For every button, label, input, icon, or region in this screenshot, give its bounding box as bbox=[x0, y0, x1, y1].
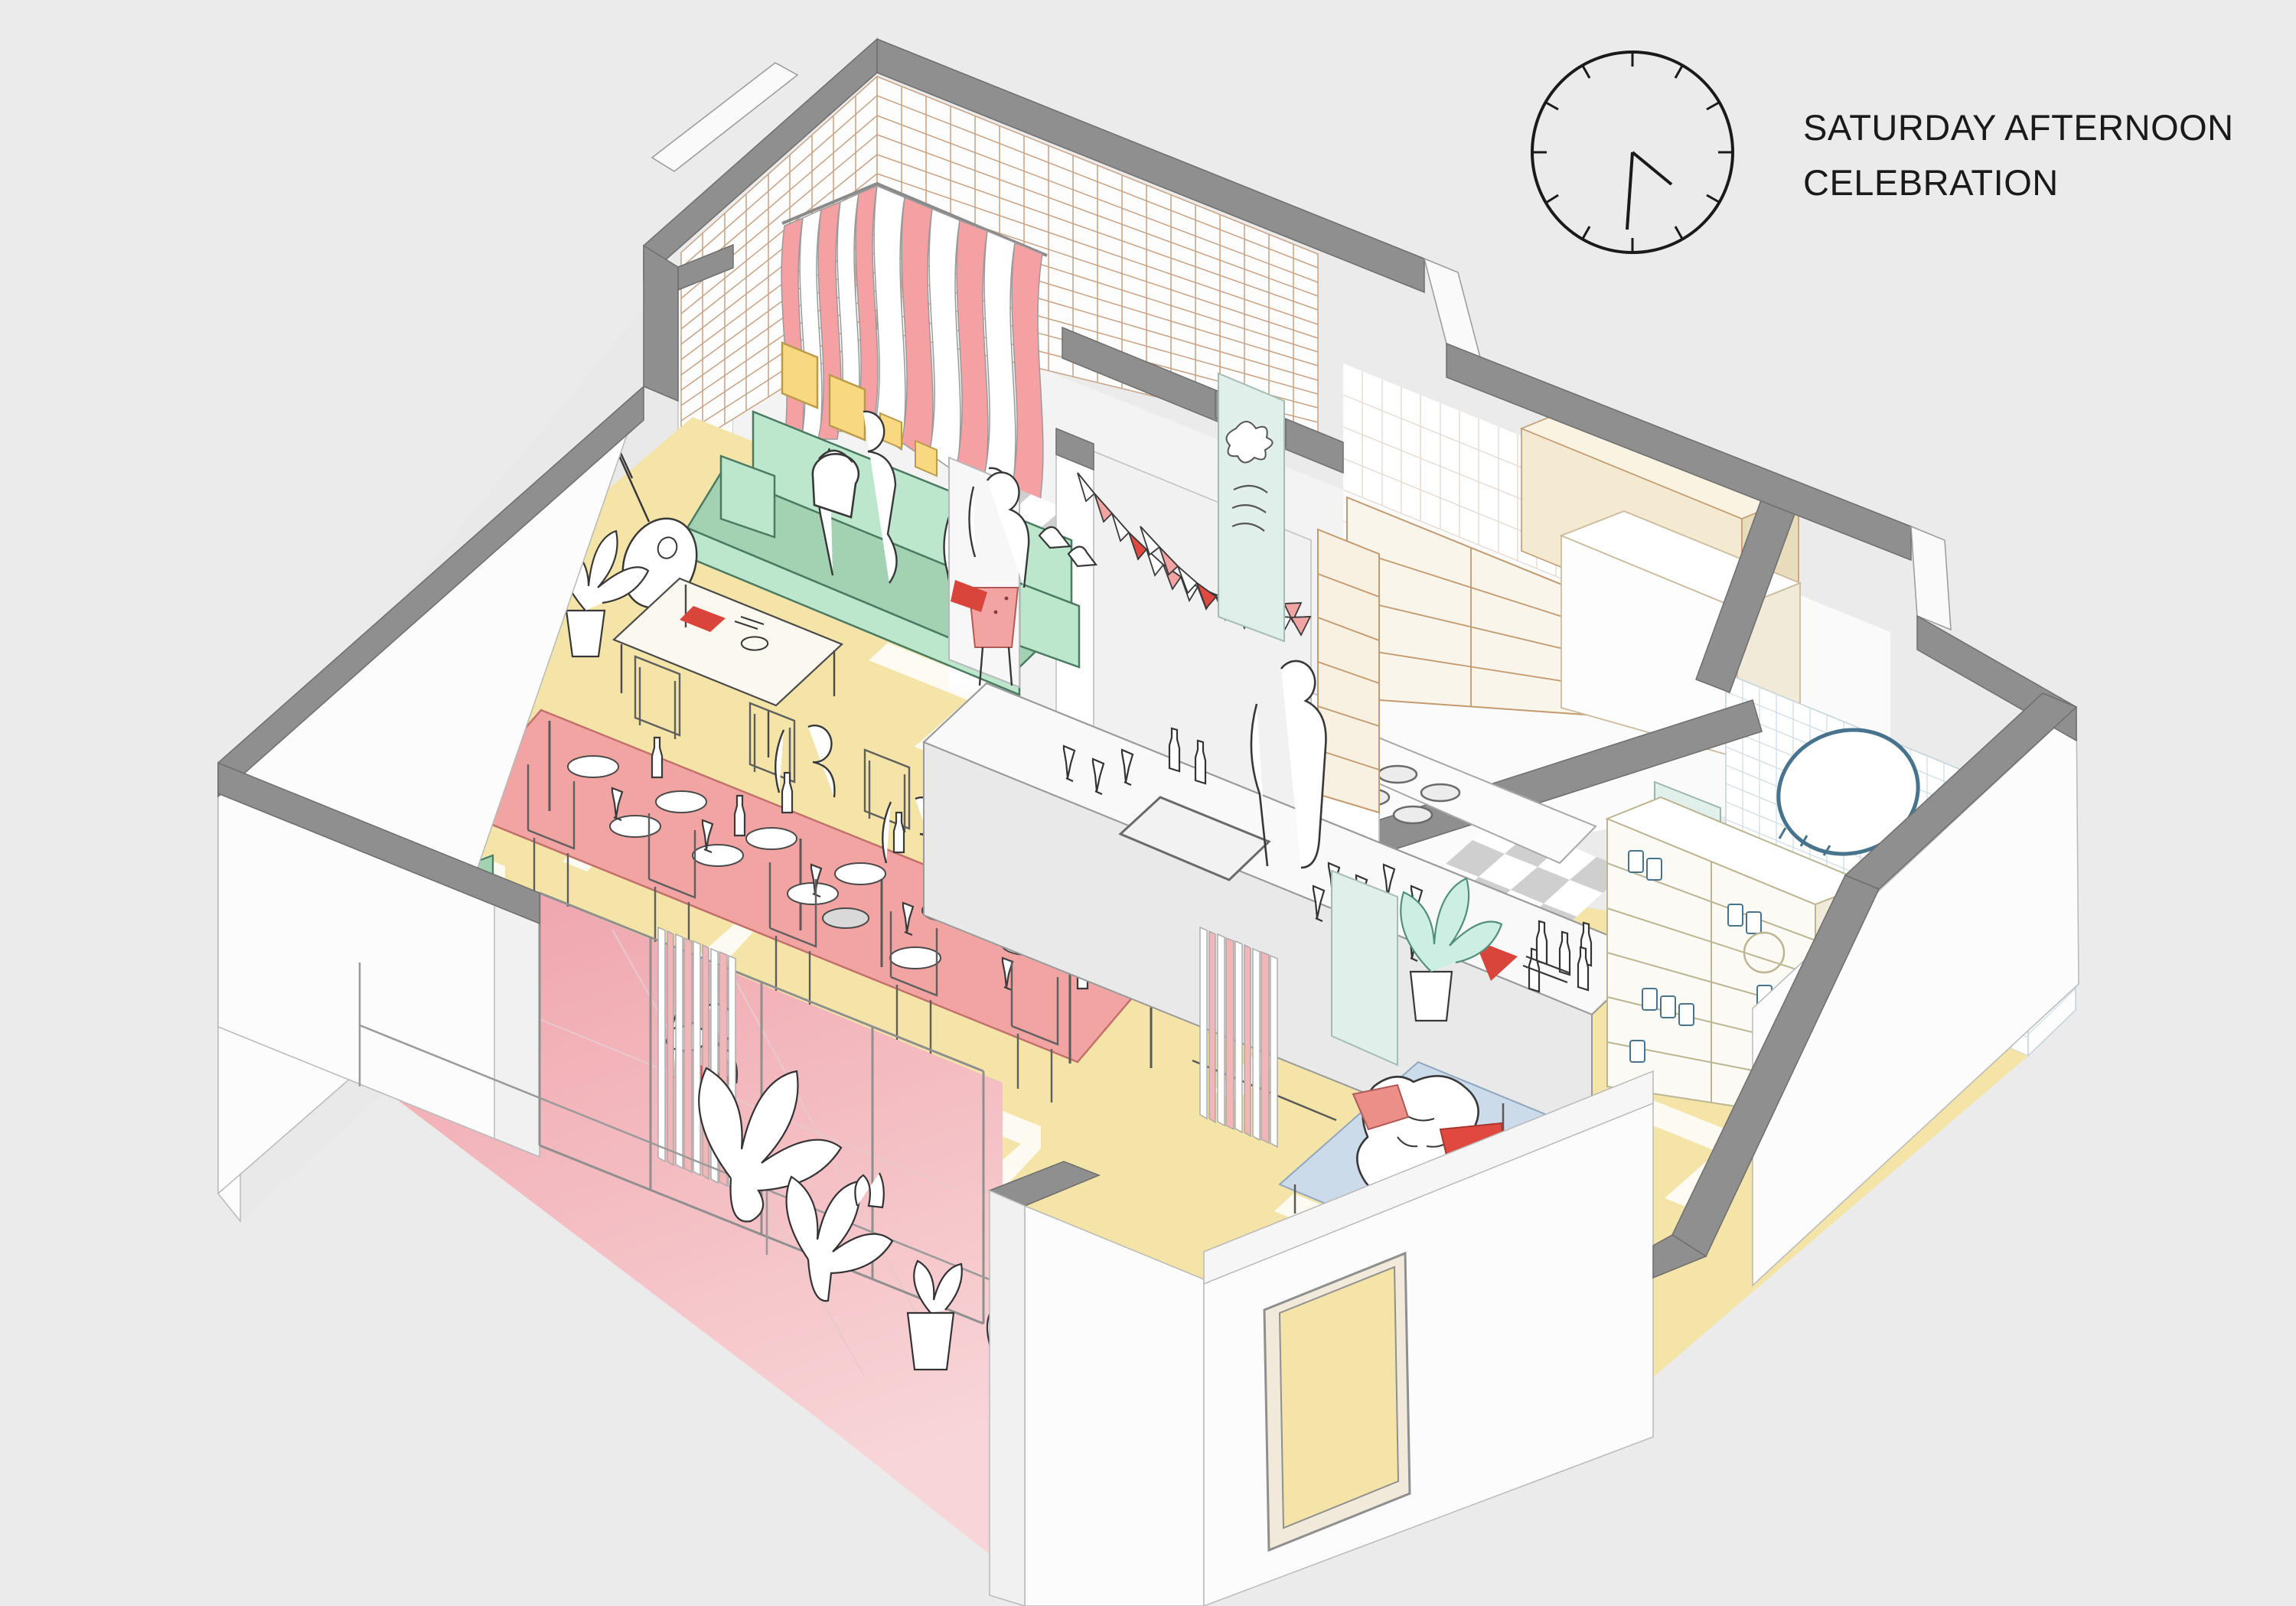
svg-text:SATURDAY AFTERNOON: SATURDAY AFTERNOON bbox=[1803, 107, 2234, 148]
svg-text:CELEBRATION: CELEBRATION bbox=[1803, 162, 2059, 203]
